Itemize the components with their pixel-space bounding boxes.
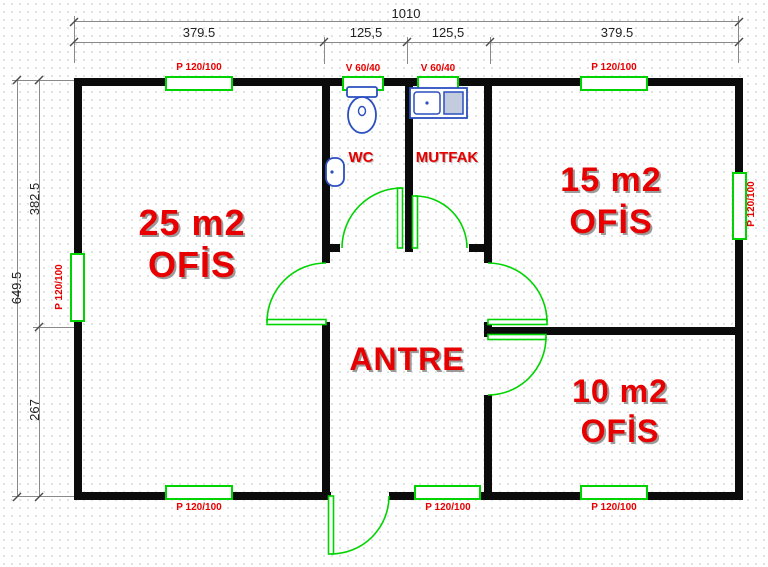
room-label-wc: WC xyxy=(333,149,389,166)
window-label-top-mutfak: V 60/40 xyxy=(403,63,473,74)
room-office15-area: 15 m2 xyxy=(511,159,711,201)
door-mutfak xyxy=(413,196,468,248)
window-label-top-wc: V 60/40 xyxy=(328,63,398,74)
window-label-bottom-office10: P 120/100 xyxy=(579,502,649,513)
door-wc xyxy=(342,188,403,248)
dim-total-height: 649.5 xyxy=(9,258,23,318)
window-label-bottom-antre: P 120/100 xyxy=(413,502,483,513)
floor-plan: 1010 379.5 125,5 125,5 379.5 649.5 382.5… xyxy=(0,0,768,567)
dim-top-seg-1: 379.5 xyxy=(164,25,234,40)
door-entrance xyxy=(329,496,390,554)
dim-top-seg-4: 379.5 xyxy=(582,25,652,40)
window-label-bottom-office25: P 120/100 xyxy=(164,502,234,513)
dim-top-seg-3: 125,5 xyxy=(413,25,483,40)
dim-left-seg-2: 267 xyxy=(27,380,41,440)
window-label-right: P 120/100 xyxy=(746,169,758,239)
room-office25-type: OFİS xyxy=(92,244,292,286)
door-office15 xyxy=(488,263,547,325)
room-office10-area: 10 m2 xyxy=(520,371,720,411)
window-label-top-office25: P 120/100 xyxy=(164,62,234,73)
room-label-mutfak: MUTFAK xyxy=(397,149,497,166)
room-office25-area: 25 m2 xyxy=(92,202,292,244)
room-label-office15: 15 m2 OFİS xyxy=(511,159,711,243)
kitchen-sink-icon xyxy=(410,88,467,118)
dim-left-seg-1: 382.5 xyxy=(27,169,41,229)
room-office10-type: OFİS xyxy=(520,411,720,451)
room-label-office25: 25 m2 OFİS xyxy=(92,202,292,286)
dim-top-seg-2: 125,5 xyxy=(331,25,401,40)
dim-total-width: 1010 xyxy=(376,6,436,21)
room-label-office10: 10 m2 OFİS xyxy=(520,371,720,451)
toilet-icon xyxy=(347,87,377,133)
room-label-antre: ANTRE xyxy=(307,343,507,375)
window-label-top-office15: P 120/100 xyxy=(579,62,649,73)
window-label-left: P 120/100 xyxy=(54,252,66,322)
room-office15-type: OFİS xyxy=(511,201,711,243)
